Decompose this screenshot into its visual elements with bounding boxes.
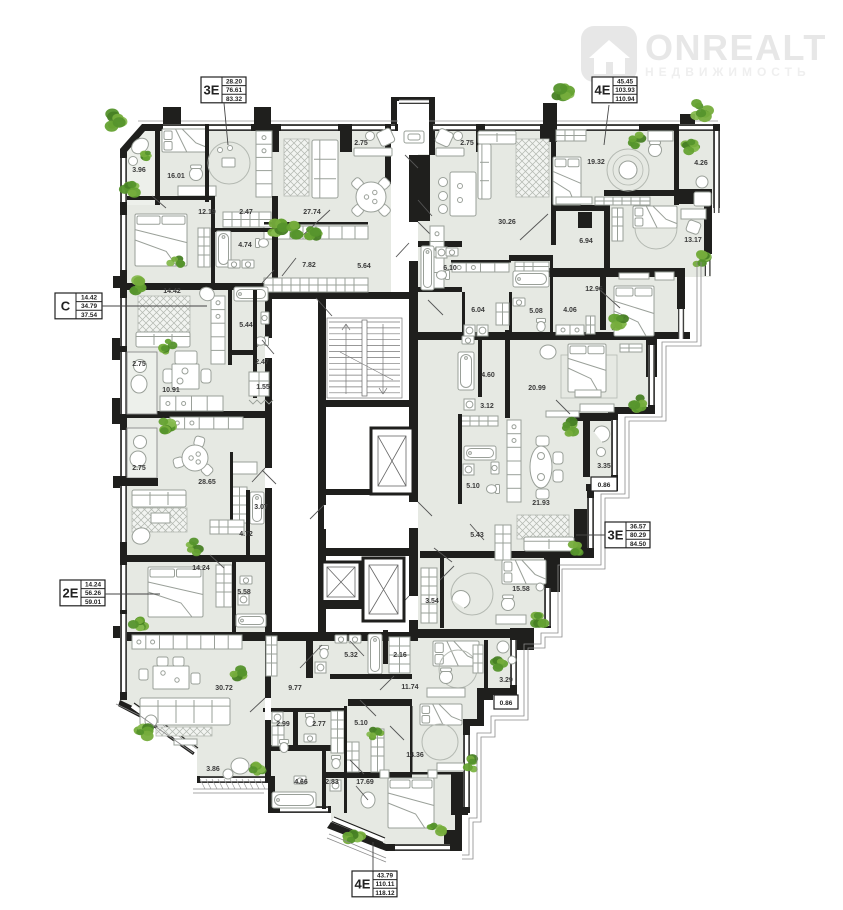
svg-text:5.64: 5.64: [357, 263, 371, 270]
svg-text:3Е: 3Е: [204, 83, 220, 98]
svg-text:3Е: 3Е: [608, 528, 624, 543]
svg-text:3.96: 3.96: [132, 167, 146, 174]
svg-text:17.69: 17.69: [356, 779, 374, 786]
svg-text:6.94: 6.94: [579, 238, 593, 245]
svg-text:5.43: 5.43: [470, 532, 484, 539]
svg-text:2.75: 2.75: [132, 465, 146, 472]
svg-text:4Е: 4Е: [595, 83, 611, 98]
svg-text:0.86: 0.86: [500, 700, 513, 707]
svg-text:2.75: 2.75: [132, 361, 146, 368]
svg-text:11.74: 11.74: [401, 684, 418, 691]
svg-text:2.47: 2.47: [255, 359, 269, 366]
svg-text:3.29: 3.29: [499, 677, 513, 684]
svg-text:5.10: 5.10: [354, 720, 368, 727]
svg-text:110.11: 110.11: [376, 881, 395, 888]
svg-text:110.94: 110.94: [615, 96, 635, 103]
svg-text:45.45: 45.45: [617, 79, 633, 86]
svg-text:80.29: 80.29: [630, 532, 646, 539]
svg-text:4.60: 4.60: [481, 372, 495, 379]
svg-text:56.26: 56.26: [85, 590, 101, 597]
svg-text:5.58: 5.58: [237, 589, 251, 596]
svg-text:5.32: 5.32: [344, 652, 358, 659]
svg-text:21.93: 21.93: [532, 500, 550, 507]
svg-text:С: С: [61, 299, 71, 314]
svg-text:2Е: 2Е: [63, 586, 79, 601]
svg-text:34.79: 34.79: [81, 303, 97, 310]
svg-text:27.74: 27.74: [303, 209, 321, 216]
svg-text:16.01: 16.01: [167, 173, 185, 180]
svg-text:118.12: 118.12: [375, 890, 395, 897]
svg-text:7.82: 7.82: [302, 262, 316, 269]
svg-text:5.44: 5.44: [239, 322, 253, 329]
svg-text:2.99: 2.99: [276, 721, 290, 728]
svg-text:30.26: 30.26: [498, 219, 516, 226]
svg-text:10.91: 10.91: [162, 387, 180, 394]
svg-text:20.99: 20.99: [528, 385, 546, 392]
svg-text:3.07: 3.07: [254, 504, 268, 511]
svg-text:4.26: 4.26: [694, 160, 708, 167]
svg-text:9.77: 9.77: [288, 685, 302, 692]
svg-text:2.83: 2.83: [325, 779, 339, 786]
svg-text:6.04: 6.04: [471, 307, 485, 314]
svg-text:14.36: 14.36: [406, 752, 424, 759]
svg-text:59.01: 59.01: [85, 599, 101, 606]
svg-text:6.10: 6.10: [443, 265, 457, 272]
svg-text:14.42: 14.42: [81, 295, 97, 302]
svg-text:30.72: 30.72: [215, 685, 233, 692]
svg-text:1.55: 1.55: [256, 384, 270, 391]
svg-text:НЕДВИЖИМОСТЬ: НЕДВИЖИМОСТЬ: [645, 65, 811, 79]
svg-text:103.93: 103.93: [615, 87, 635, 94]
svg-text:2.16: 2.16: [393, 652, 407, 659]
svg-text:14.42: 14.42: [163, 288, 181, 295]
svg-text:14.24: 14.24: [192, 565, 210, 572]
svg-text:2.75: 2.75: [460, 140, 474, 147]
svg-text:2.47: 2.47: [239, 209, 253, 216]
svg-text:12.19: 12.19: [198, 209, 216, 216]
svg-text:3.35: 3.35: [597, 463, 611, 470]
svg-text:5.10: 5.10: [466, 483, 480, 490]
svg-text:3.54: 3.54: [425, 598, 439, 605]
svg-text:28.20: 28.20: [226, 79, 242, 86]
svg-text:28.65: 28.65: [198, 479, 216, 486]
svg-text:4.06: 4.06: [563, 307, 577, 314]
svg-text:37.54: 37.54: [81, 312, 97, 319]
svg-text:36.57: 36.57: [630, 524, 646, 531]
svg-text:43.79: 43.79: [377, 873, 393, 880]
svg-text:4.72: 4.72: [239, 531, 253, 538]
svg-text:4.74: 4.74: [238, 242, 252, 249]
svg-text:3.12: 3.12: [480, 403, 494, 410]
svg-text:ONREALT: ONREALT: [645, 27, 827, 68]
svg-text:14.24: 14.24: [85, 582, 101, 589]
svg-text:12.96: 12.96: [585, 286, 603, 293]
svg-text:3.86: 3.86: [206, 766, 220, 773]
svg-text:2.75: 2.75: [354, 140, 368, 147]
svg-text:13.17: 13.17: [684, 237, 702, 244]
svg-text:4Е: 4Е: [355, 877, 371, 892]
svg-text:84.50: 84.50: [630, 541, 646, 548]
svg-text:2.77: 2.77: [312, 721, 326, 728]
svg-text:83.32: 83.32: [226, 96, 242, 103]
svg-text:76.61: 76.61: [226, 87, 242, 94]
svg-text:4.66: 4.66: [294, 779, 308, 786]
svg-text:19.32: 19.32: [587, 159, 605, 166]
svg-text:5.08: 5.08: [529, 308, 543, 315]
svg-text:0.86: 0.86: [598, 482, 611, 489]
svg-text:15.58: 15.58: [512, 586, 530, 593]
